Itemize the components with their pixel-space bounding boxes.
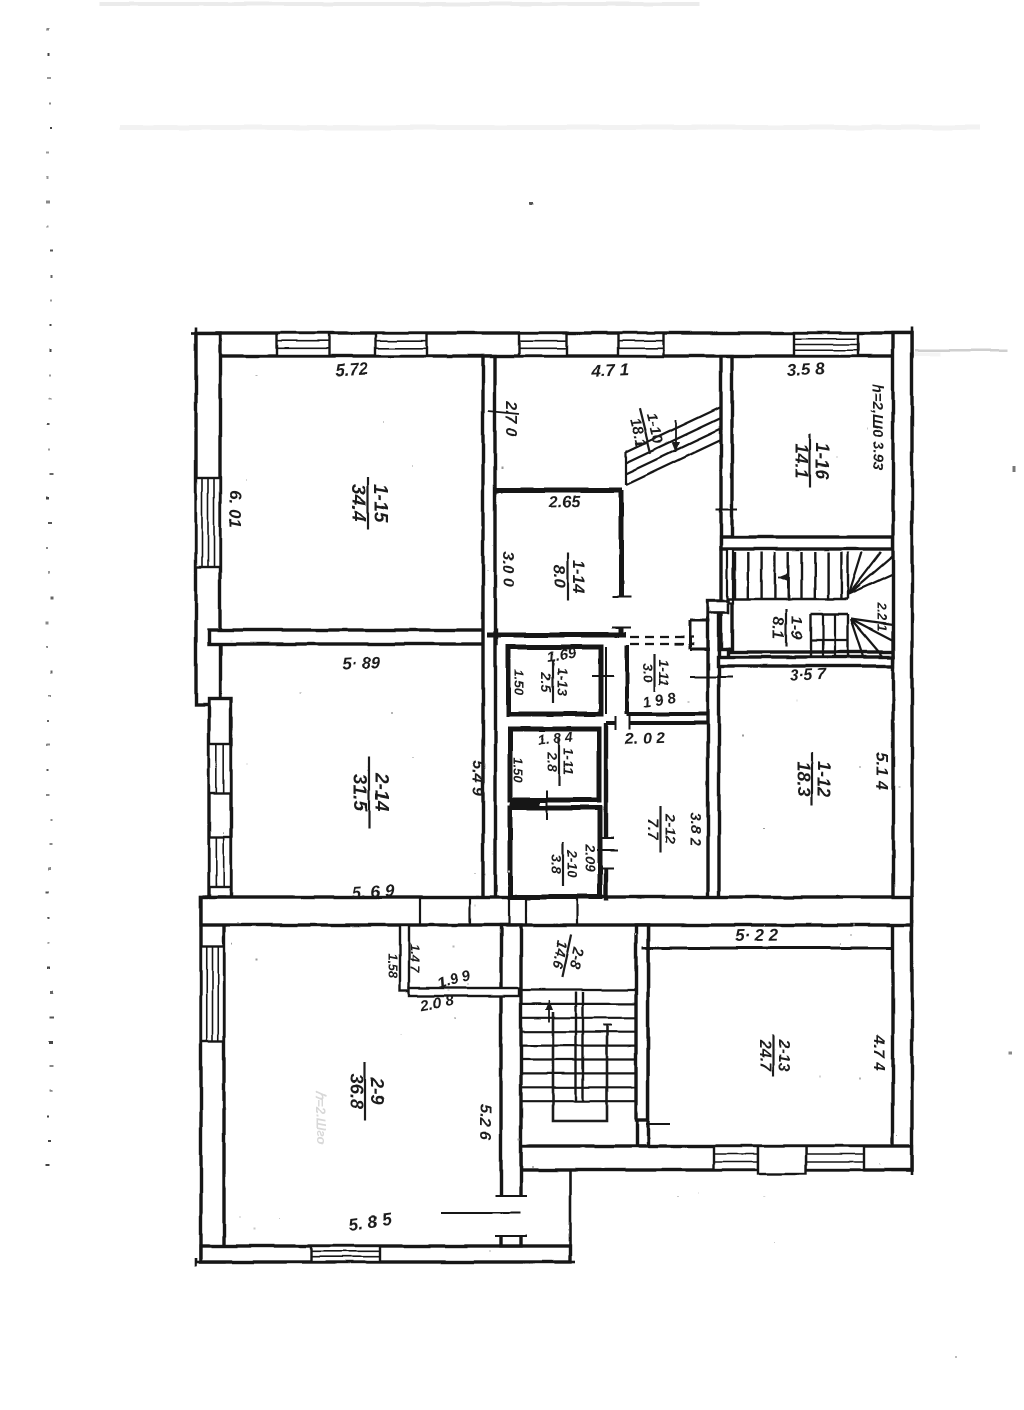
svg-text:5· 2 2: 5· 2 2 [735, 926, 779, 946]
svg-text:24.7: 24.7 [756, 1039, 773, 1072]
svg-text:1. 8 4: 1. 8 4 [537, 729, 574, 748]
svg-text:5.1 4: 5.1 4 [873, 752, 892, 790]
svg-text:6. 01: 6. 01 [226, 490, 245, 528]
svg-text:31.5: 31.5 [349, 774, 370, 811]
svg-text:1-14: 1-14 [570, 559, 589, 594]
svg-text:2. 0 2: 2. 0 2 [624, 730, 666, 748]
svg-text:7.7: 7.7 [644, 819, 661, 841]
svg-text:5· 89: 5· 89 [341, 653, 381, 674]
svg-text:4.7 4: 4.7 4 [870, 1034, 887, 1071]
svg-text:2.2 1: 2.2 1 [875, 602, 890, 632]
svg-text:5.4 9: 5.4 9 [469, 760, 486, 796]
svg-text:1-16: 1-16 [812, 443, 832, 480]
svg-text:2.65: 2.65 [548, 493, 582, 511]
svg-text:1-15: 1-15 [369, 484, 390, 522]
svg-text:1-11: 1-11 [657, 660, 673, 687]
svg-text:1-9: 1-9 [787, 616, 804, 639]
svg-text:18.3: 18.3 [793, 761, 813, 796]
svg-text:5. 6 9: 5. 6 9 [351, 881, 395, 902]
svg-text:1.50: 1.50 [512, 669, 527, 695]
svg-text:2-12: 2-12 [661, 813, 678, 845]
svg-text:5.2 6: 5.2 6 [476, 1104, 493, 1140]
svg-text:8.1: 8.1 [769, 617, 786, 639]
svg-text:1.50: 1.50 [511, 757, 526, 783]
svg-text:1-12: 1-12 [814, 761, 834, 797]
svg-text:3.0 0: 3.0 0 [499, 551, 516, 587]
svg-text:2.5: 2.5 [539, 671, 555, 692]
svg-text:1.58: 1.58 [386, 953, 401, 979]
svg-text:2-10: 2-10 [565, 849, 581, 878]
svg-text:3.0: 3.0 [641, 663, 657, 683]
svg-text:h=2,Ш0 3.93: h=2,Ш0 3.93 [869, 384, 886, 471]
svg-text:ℎ=2.Шго: ℎ=2.Шго [314, 1091, 329, 1145]
svg-text:36.8: 36.8 [346, 1073, 366, 1108]
svg-text:3·5 7: 3·5 7 [789, 666, 827, 684]
svg-text:3.8 2: 3.8 2 [687, 812, 704, 846]
svg-text:2.8: 2.8 [545, 751, 561, 772]
svg-text:3.8: 3.8 [549, 854, 565, 874]
svg-text:1-13: 1-13 [555, 668, 571, 696]
svg-text:2.09: 2.09 [582, 843, 598, 871]
svg-text:3.5 8: 3.5 8 [786, 359, 825, 380]
svg-text:1.4 7: 1.4 7 [408, 944, 423, 974]
svg-text:34.4: 34.4 [348, 485, 369, 522]
svg-text:2.7 0: 2.7 0 [502, 400, 519, 437]
svg-text:2-9: 2-9 [367, 1077, 387, 1104]
svg-text:4.7 1: 4.7 1 [590, 360, 630, 381]
svg-text:8.0: 8.0 [550, 565, 569, 589]
svg-text:14.1: 14.1 [791, 443, 811, 478]
svg-text:1-11: 1-11 [561, 748, 577, 775]
svg-text:5.72: 5.72 [334, 359, 369, 380]
svg-text:2-13: 2-13 [774, 1038, 791, 1071]
svg-text:2-14: 2-14 [370, 772, 391, 811]
